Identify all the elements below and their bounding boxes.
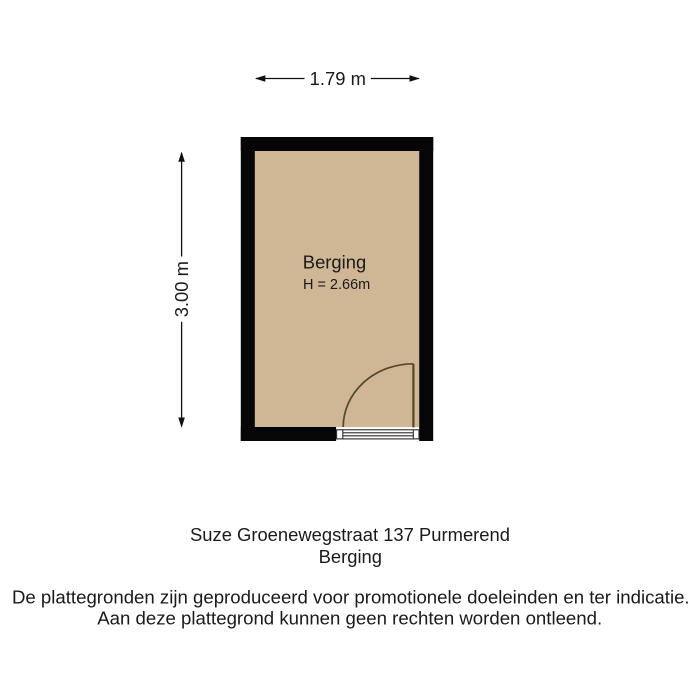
svg-text:3.00 m: 3.00 m xyxy=(171,261,192,317)
svg-text:1.79 m: 1.79 m xyxy=(310,68,366,89)
svg-text:Suze Groenewegstraat 137 Purme: Suze Groenewegstraat 137 Purmerend xyxy=(190,524,510,545)
svg-text:Berging: Berging xyxy=(319,546,382,567)
svg-text:Berging: Berging xyxy=(303,251,366,272)
svg-text:De plattegronden zijn geproduc: De plattegronden zijn geproduceerd voor … xyxy=(12,587,690,608)
svg-text:Aan deze plattegrond kunnen ge: Aan deze plattegrond kunnen geen rechten… xyxy=(97,607,602,628)
svg-text:H = 2.66m: H = 2.66m xyxy=(303,277,370,293)
